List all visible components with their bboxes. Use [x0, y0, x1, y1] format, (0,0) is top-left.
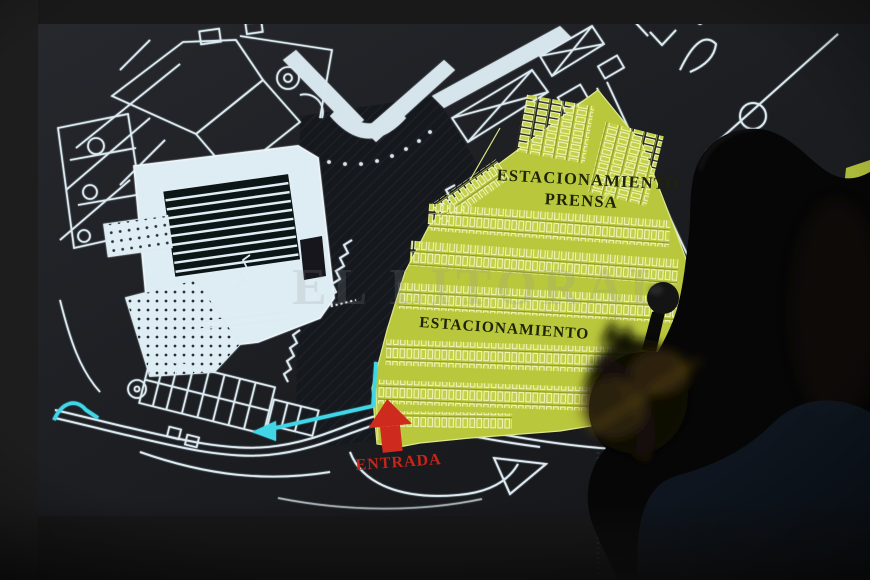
- site-plan-scene: ESTACIONAMIENTO PRENSA ESTACIONAMIENTO E…: [0, 0, 870, 580]
- vignette: [0, 0, 870, 580]
- projection-photo: ESTACIONAMIENTO PRENSA ESTACIONAMIENTO E…: [0, 0, 870, 580]
